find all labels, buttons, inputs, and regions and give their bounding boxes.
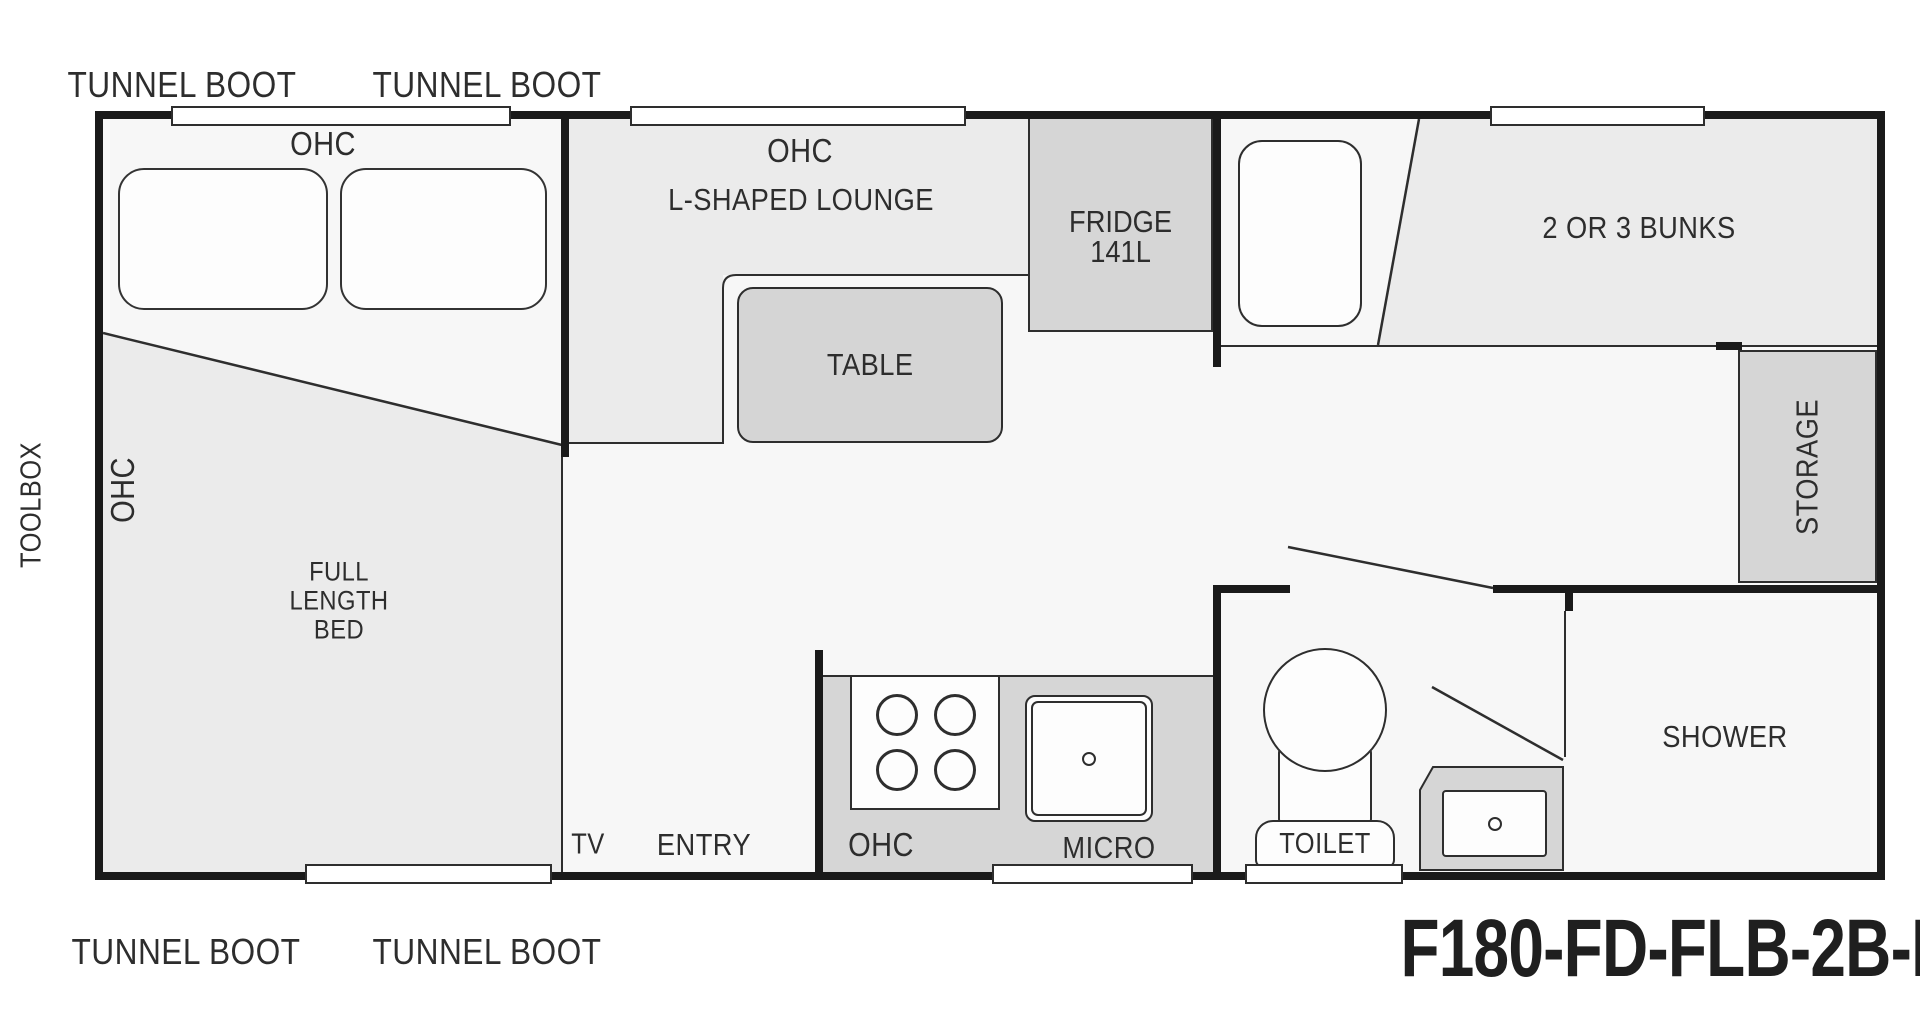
microwave-label: MICRO <box>1062 830 1155 866</box>
toilet-bowl <box>1263 648 1387 772</box>
shower-divider-stub <box>1565 585 1573 611</box>
kitchen-ohc-label: OHC <box>848 826 914 864</box>
bed-label-line1: FULL <box>289 558 388 587</box>
sink-drain-dot <box>1488 817 1502 831</box>
dinette-table: TABLE <box>737 287 1003 443</box>
bathroom-window-hatch <box>1245 864 1403 884</box>
tv-label: TV <box>571 829 604 862</box>
window-hatch-bunks <box>1490 106 1705 126</box>
tunnel-boot-hatch-top-left <box>171 106 511 126</box>
caravan-floorplan: TUNNEL BOOT TUNNEL BOOT TUNNEL BOOT TUNN… <box>0 0 1920 1015</box>
caravan-body-outline: TABLE FRIDGE 141L STORAGE <box>95 111 1885 880</box>
shower-door-leaf <box>1432 687 1563 760</box>
bed-pillow-right <box>340 168 547 310</box>
full-length-bed-label: FULL LENGTH BED <box>289 558 388 645</box>
bathroom-door-leaf <box>1288 547 1493 588</box>
bed-label-line2: LENGTH <box>289 587 388 616</box>
cooktop-burner-4 <box>934 749 976 791</box>
tunnel-boot-label-bottom-left: TUNNEL BOOT <box>72 931 301 973</box>
cooktop <box>850 675 1000 810</box>
shower-label: SHOWER <box>1662 719 1787 755</box>
kitchen-window-hatch <box>992 864 1193 884</box>
bedroom-lounge-wall <box>561 119 569 457</box>
fridge-side-wall <box>1213 119 1221 367</box>
microwave-door <box>1031 701 1147 816</box>
microwave <box>1025 695 1153 822</box>
storage-label: STORAGE <box>1790 399 1826 535</box>
tunnel-boot-hatch-top-mid <box>630 106 966 126</box>
bedroom-ohc-label: OHC <box>290 125 356 163</box>
microwave-handle-dot <box>1082 752 1096 766</box>
cooktop-burner-2 <box>934 694 976 736</box>
bedroom-side-ohc-label: OHC <box>104 457 142 523</box>
table-label: TABLE <box>827 347 914 383</box>
cooktop-burner-1 <box>876 694 918 736</box>
storage-wall-stub <box>1716 342 1742 350</box>
lounge-label: L-SHAPED LOUNGE <box>668 182 934 218</box>
bunks-label: 2 OR 3 BUNKS <box>1542 210 1735 246</box>
fridge-capacity-label: 141L <box>1069 237 1172 267</box>
cooktop-burner-3 <box>876 749 918 791</box>
shower-divider-line <box>1564 611 1566 757</box>
bed-label-line3: BED <box>289 616 388 645</box>
model-code: F180-FD-FLB-2B-LS <box>1400 908 1856 990</box>
wardrobe-cabinet <box>1238 140 1362 327</box>
toilet-base: TOILET <box>1255 820 1395 868</box>
tunnel-boot-label-bottom-mid: TUNNEL BOOT <box>373 931 602 973</box>
toolbox-label: TOOLBOX <box>16 442 49 568</box>
tunnel-boot-label-top-mid: TUNNEL BOOT <box>373 64 602 106</box>
lounge-ohc-label: OHC <box>767 132 833 170</box>
storage-locker: STORAGE <box>1738 350 1877 583</box>
tunnel-boot-hatch-bottom <box>305 864 552 884</box>
fridge: FRIDGE 141L <box>1028 119 1213 332</box>
fridge-label: FRIDGE <box>1069 207 1172 237</box>
kitchen-end-wall <box>815 650 823 872</box>
shower-front-wall <box>1493 585 1877 593</box>
entry-label: ENTRY <box>657 827 751 863</box>
vanity-sink <box>1442 790 1547 857</box>
bathroom-front-wall <box>1213 585 1290 593</box>
bed-pillow-left <box>118 168 328 310</box>
toilet-label: TOILET <box>1279 828 1371 861</box>
tunnel-boot-label-top-left: TUNNEL BOOT <box>68 64 297 106</box>
bathroom-side-wall <box>1213 585 1221 872</box>
